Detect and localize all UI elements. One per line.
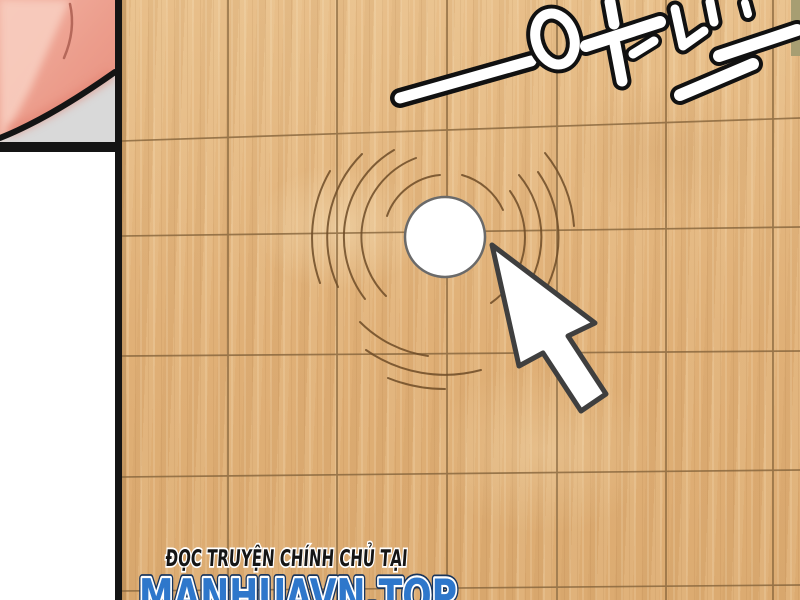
footer-caption-line1: ĐỌC TRUYỆN CHÍNH CHỦ TẠI xyxy=(165,542,409,572)
left-gutter xyxy=(0,0,122,600)
click-marker-circle xyxy=(405,197,485,277)
grid-hline xyxy=(122,470,800,477)
footer-captions: ĐỌC TRUYỆN CHÍNH CHỦ TẠI MANHUAVN.TOP MA… xyxy=(139,542,457,600)
grid-hline xyxy=(122,118,800,141)
panel-border-horizontal xyxy=(0,142,122,152)
board-left-edge-shade xyxy=(122,0,126,600)
sfx-char-ka1 xyxy=(529,2,660,81)
panel-artwork: ĐỌC TRUYỆN CHÍNH CHỦ TẠI MANHUAVN.TOP MA… xyxy=(0,0,800,600)
sfx-char-da xyxy=(675,2,797,95)
grid-hline xyxy=(122,351,800,356)
comic-page: 咔哒 xyxy=(0,0,800,600)
footer-site-name: MANHUAVN.TOP xyxy=(139,569,457,600)
sfx-dash xyxy=(400,61,531,98)
panel-border-vertical xyxy=(115,0,122,600)
sfx-kada-lettering xyxy=(400,2,797,98)
cursor-arrow-icon xyxy=(492,245,606,411)
